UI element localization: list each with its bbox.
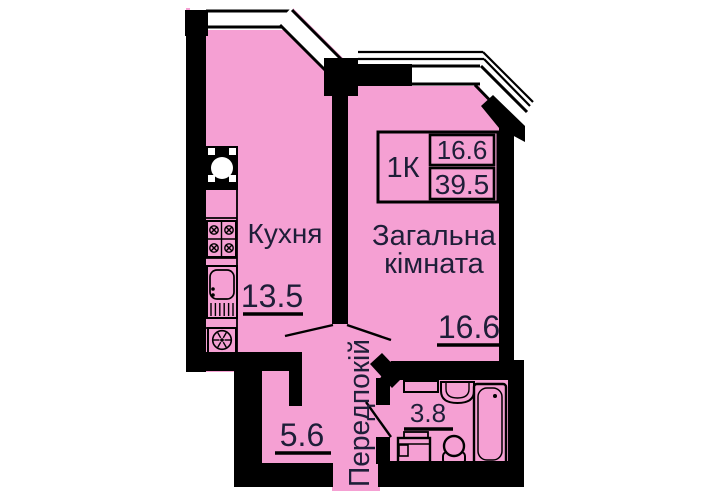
bathroom-area: 3.8: [410, 398, 446, 428]
hall-label: Передпокій: [344, 339, 376, 487]
living-label-line2: кімната: [384, 248, 485, 280]
wall-bath-divider-lower: [376, 437, 390, 464]
wall-bath-divider-upper: [376, 378, 390, 405]
kitchen-area: 13.5: [241, 278, 303, 314]
wall-living-top: [348, 64, 412, 86]
wall-divider-kitchen-living: [332, 62, 348, 324]
floor-plan-image: 1К 16.6 39.5 Кухня 13.5 Загальна кімната…: [0, 0, 707, 500]
apartment-type-label: 1К: [386, 152, 419, 184]
wall-bottom-left: [234, 463, 333, 487]
wall-kitchen-stub: [289, 352, 302, 406]
wall-kitchen-bottom: [186, 352, 302, 371]
wall-corner-top-left: [185, 10, 208, 36]
floor-plan-svg: 1К 16.6 39.5 Кухня 13.5 Загальна кімната…: [0, 0, 707, 500]
living-area: 16.6: [438, 309, 500, 345]
vent-icon: [206, 146, 238, 190]
kitchen-label: Кухня: [248, 218, 323, 249]
living-area-value: 16.6: [437, 135, 488, 165]
wall-left: [186, 10, 206, 372]
window-living-top: [412, 64, 480, 86]
total-area-value: 39.5: [435, 169, 490, 200]
stove-icon: [207, 221, 236, 257]
hall-area: 5.6: [280, 417, 324, 453]
wall-living-right: [499, 118, 514, 366]
